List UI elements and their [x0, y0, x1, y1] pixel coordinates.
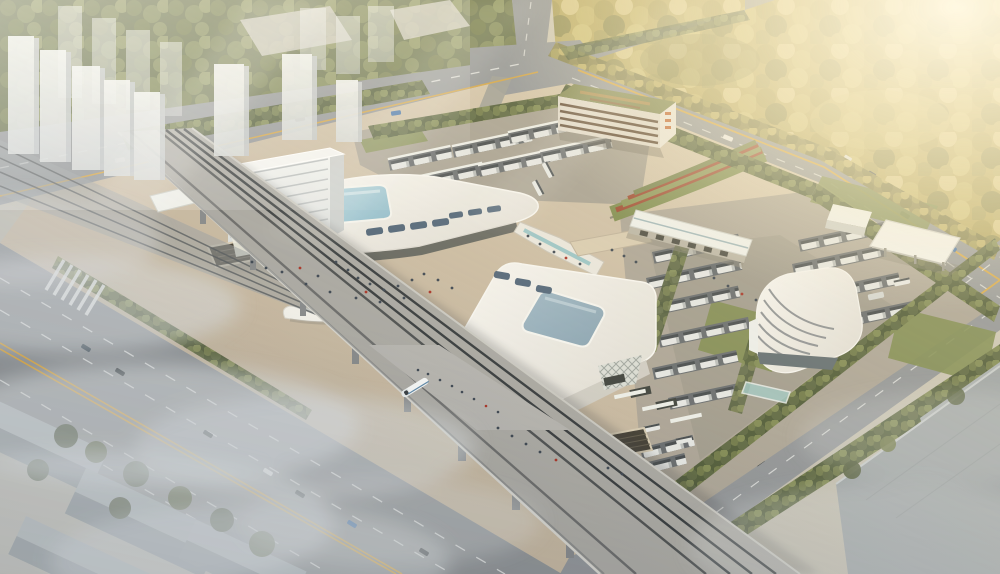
atmosphere — [0, 0, 1000, 574]
scene-svg — [0, 0, 1000, 574]
rendering-canvas — [0, 0, 1000, 574]
vignette — [0, 0, 1000, 574]
